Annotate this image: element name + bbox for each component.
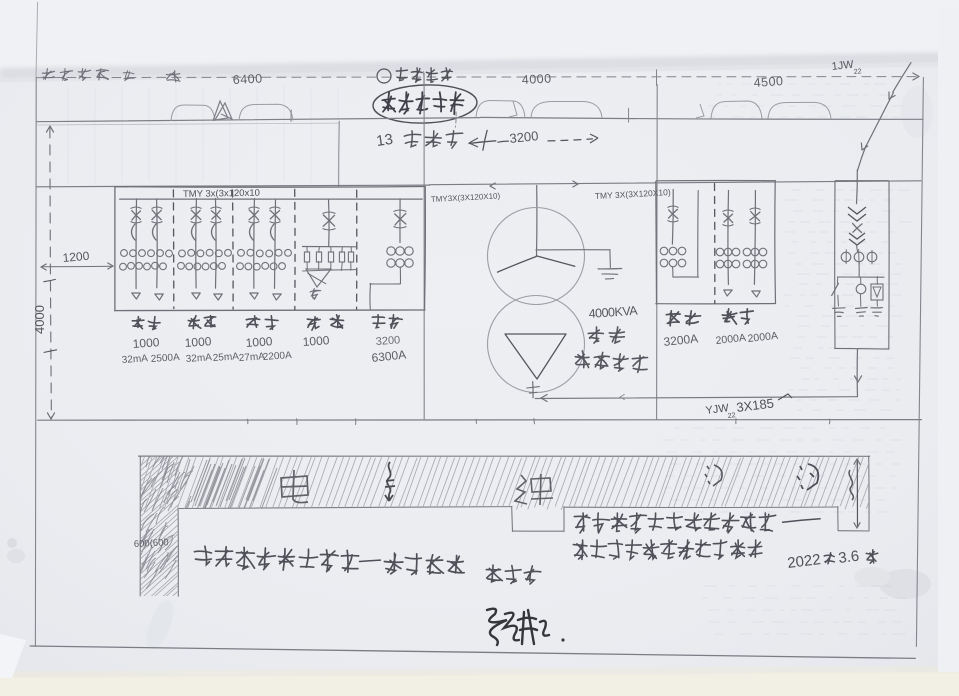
svg-text:1000: 1000 (132, 335, 160, 351)
svg-text:22: 22 (853, 68, 862, 76)
svg-text:4000: 4000 (521, 71, 552, 87)
svg-text:6400: 6400 (232, 71, 263, 87)
svg-text:4000: 4000 (32, 305, 47, 334)
svg-text:2500A: 2500A (150, 352, 180, 365)
svg-text:3200: 3200 (509, 128, 539, 146)
svg-text:TMY 3x(3x120x10: TMY 3x(3x120x10 (183, 188, 260, 200)
svg-text:25mA: 25mA (212, 351, 239, 364)
svg-text:1000: 1000 (245, 334, 273, 350)
svg-text:32mA: 32mA (185, 352, 212, 365)
svg-text:27mA: 27mA (238, 351, 265, 364)
svg-text:3200: 3200 (375, 334, 400, 348)
svg-text:22: 22 (727, 412, 736, 420)
svg-text:600(600: 600(600 (134, 537, 169, 550)
svg-text:1200: 1200 (62, 249, 90, 265)
svg-text:4500: 4500 (753, 74, 784, 90)
svg-text:1JW: 1JW (831, 59, 855, 73)
svg-text:32mA: 32mA (121, 353, 148, 366)
svg-text:1000: 1000 (302, 333, 330, 349)
svg-text:13: 13 (375, 131, 394, 150)
svg-text:2200A: 2200A (262, 350, 292, 363)
svg-text:3.6: 3.6 (837, 548, 860, 567)
svg-text:1000: 1000 (184, 334, 212, 350)
